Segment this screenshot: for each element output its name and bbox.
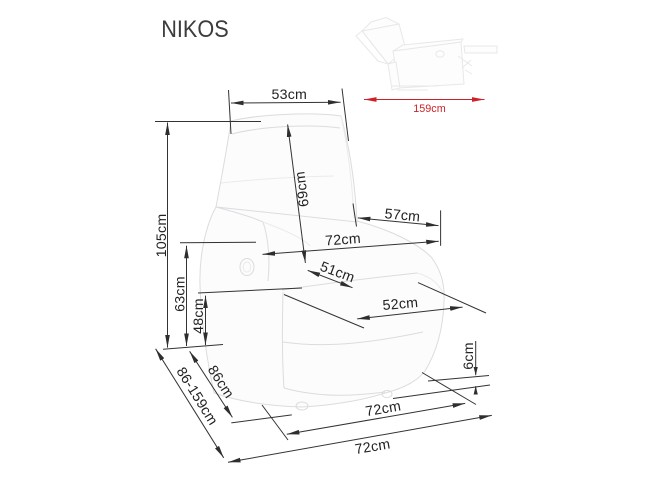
svg-text:52cm: 52cm (382, 295, 419, 314)
svg-text:72cm: 72cm (354, 436, 392, 458)
svg-text:105cm: 105cm (154, 214, 170, 258)
svg-text:NIKOS: NIKOS (161, 16, 229, 43)
svg-text:72cm: 72cm (325, 231, 362, 250)
svg-text:159cm: 159cm (413, 103, 445, 115)
svg-text:72cm: 72cm (364, 398, 402, 420)
svg-text:53cm: 53cm (271, 87, 307, 103)
svg-text:48cm: 48cm (191, 298, 207, 334)
svg-text:57cm: 57cm (384, 206, 421, 225)
svg-text:63cm: 63cm (173, 276, 189, 312)
svg-text:6cm: 6cm (461, 342, 477, 370)
